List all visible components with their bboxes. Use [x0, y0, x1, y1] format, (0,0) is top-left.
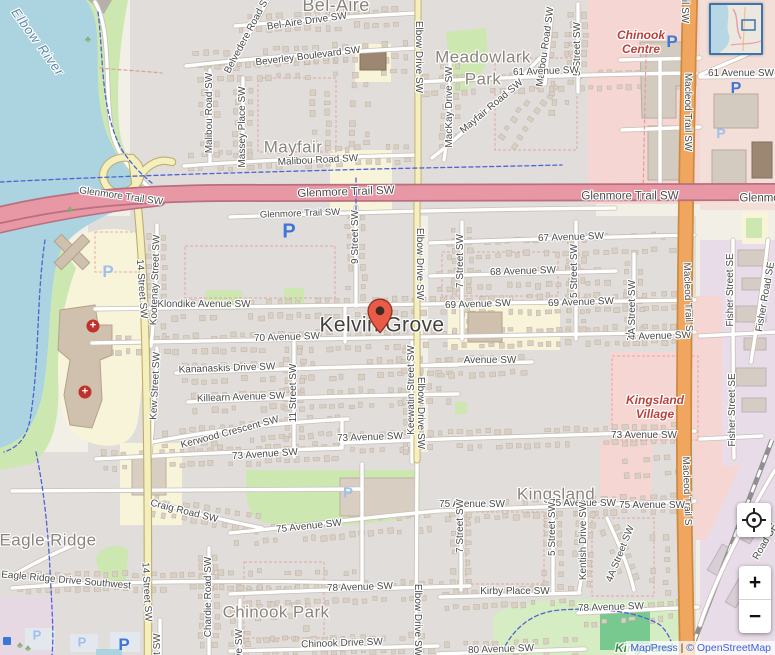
locate-button[interactable]	[737, 503, 771, 537]
zoom-out-button[interactable]: −	[739, 600, 771, 633]
zoom-control: + −	[739, 566, 771, 633]
overview-inset-map[interactable]	[709, 3, 763, 55]
attribution-separator: |	[681, 642, 684, 654]
map-canvas[interactable]: Bel-AireMeadowlarkParkMayfairKelvin Grov…	[0, 0, 775, 655]
mappress-link[interactable]: MapPress	[630, 642, 677, 654]
attribution-bar: MapPress | © OpenStreetMap	[626, 641, 775, 655]
target-icon	[737, 503, 771, 537]
osm-link[interactable]: © OpenStreetMap	[686, 642, 771, 654]
zoom-in-button[interactable]: +	[739, 566, 771, 599]
map-marker[interactable]	[367, 298, 393, 334]
